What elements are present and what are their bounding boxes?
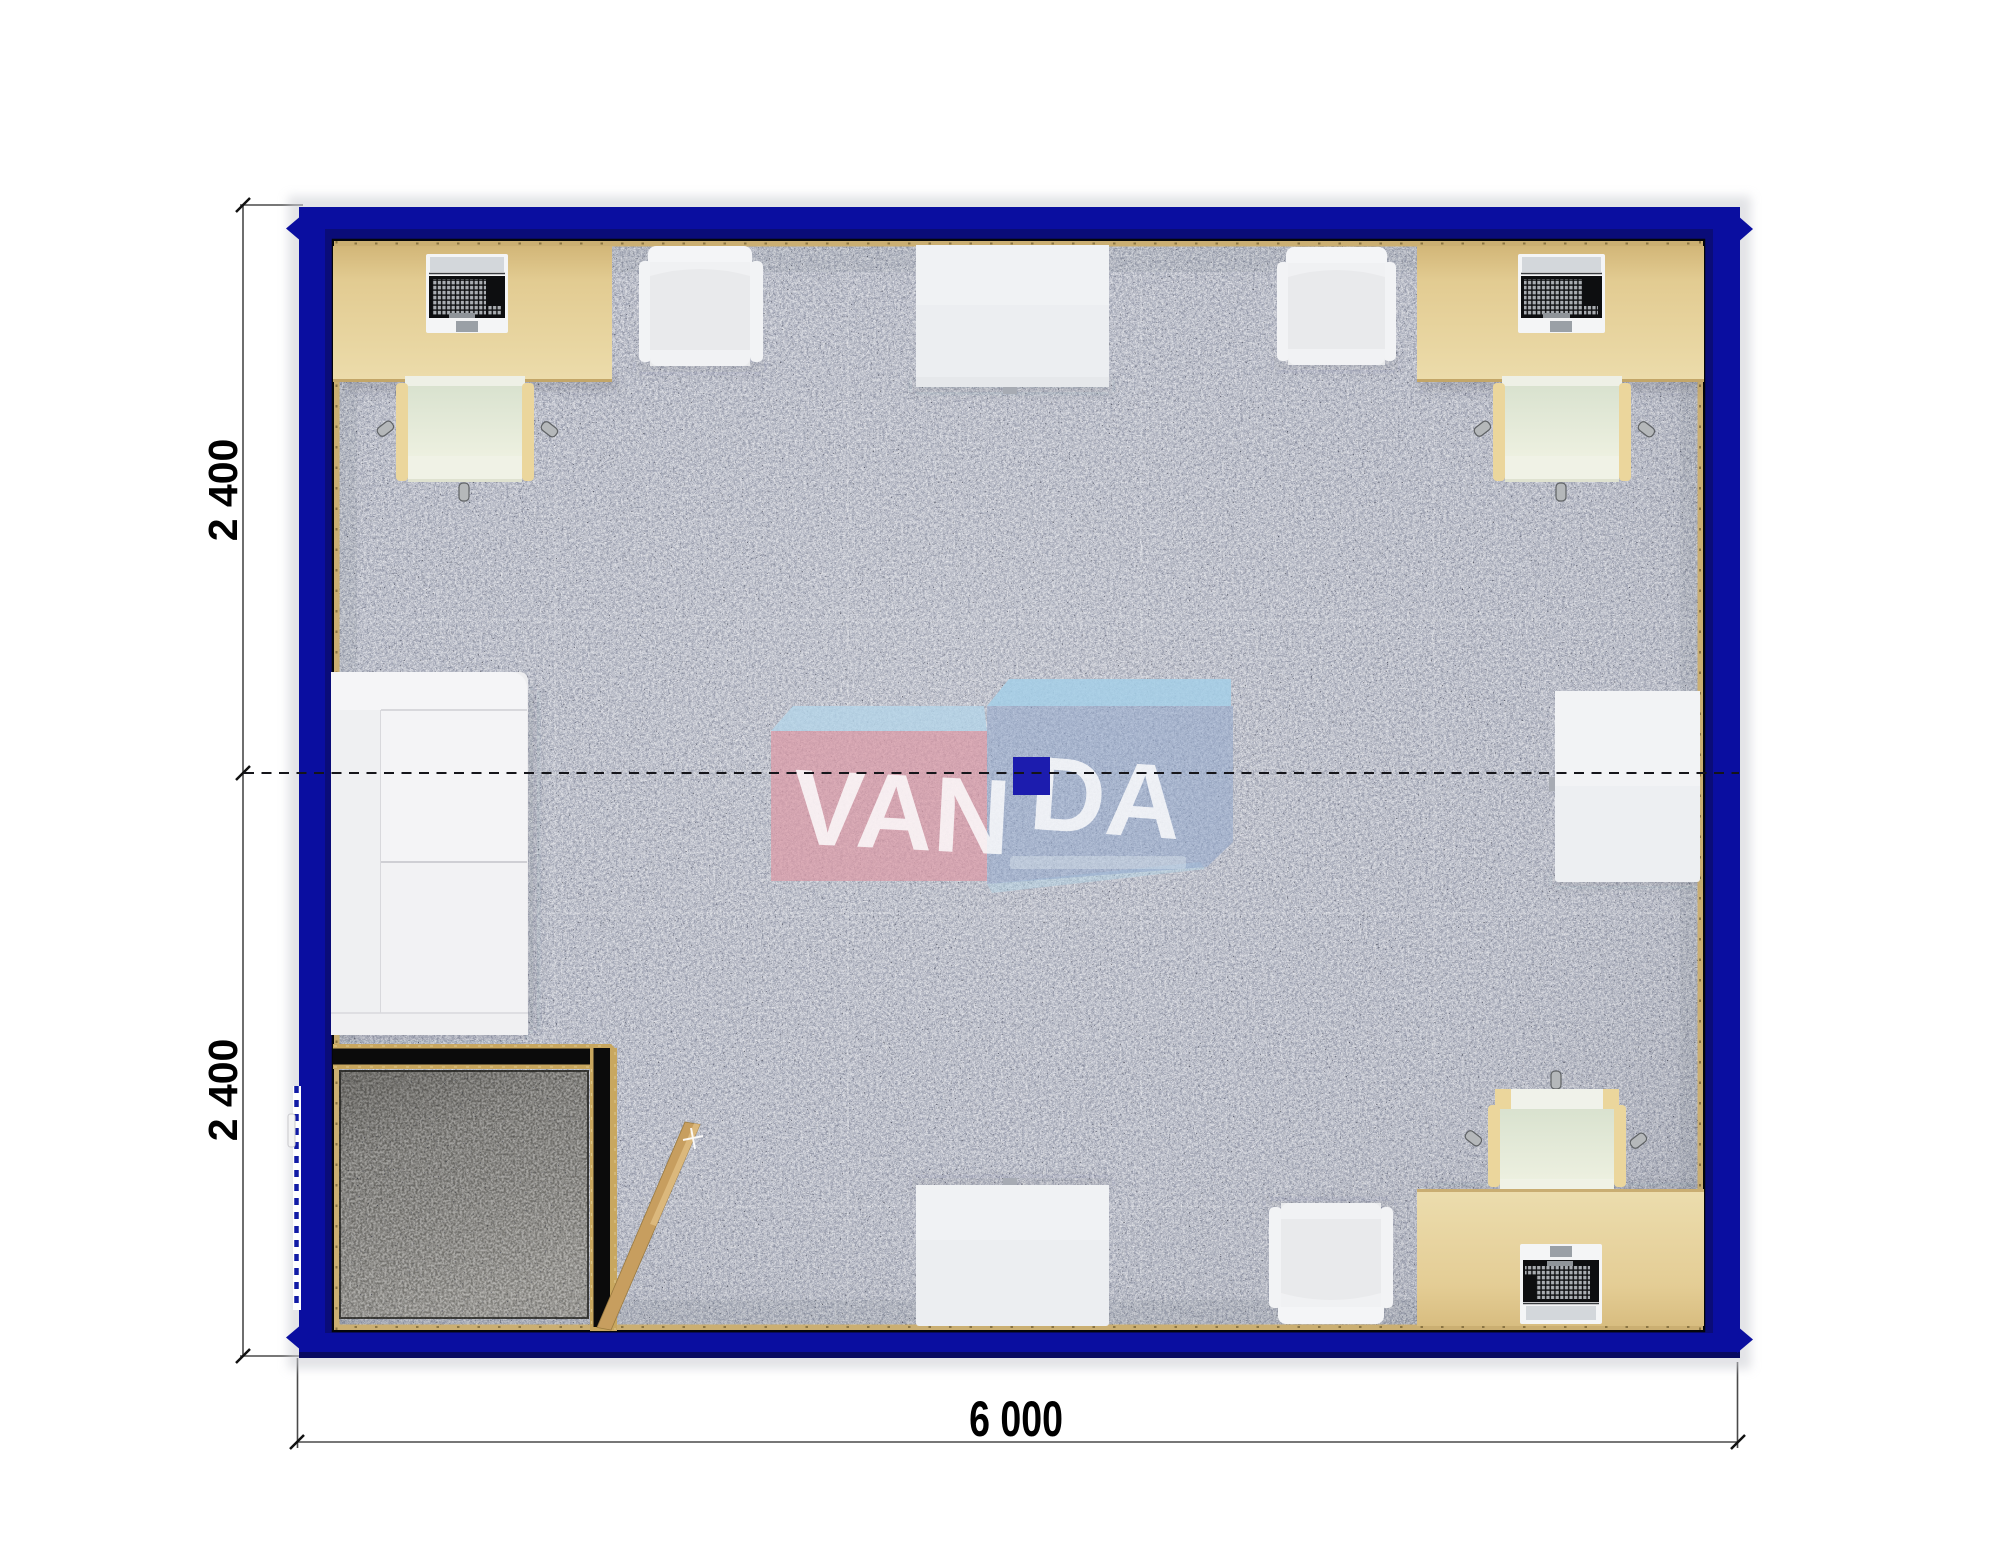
svg-text:6 000: 6 000	[969, 1392, 1063, 1447]
svg-text:DA: DA	[1026, 735, 1185, 862]
svg-text:2 400: 2 400	[200, 439, 246, 542]
svg-text:2 400: 2 400	[200, 1039, 246, 1142]
svg-text:VAN: VAN	[790, 746, 1014, 877]
